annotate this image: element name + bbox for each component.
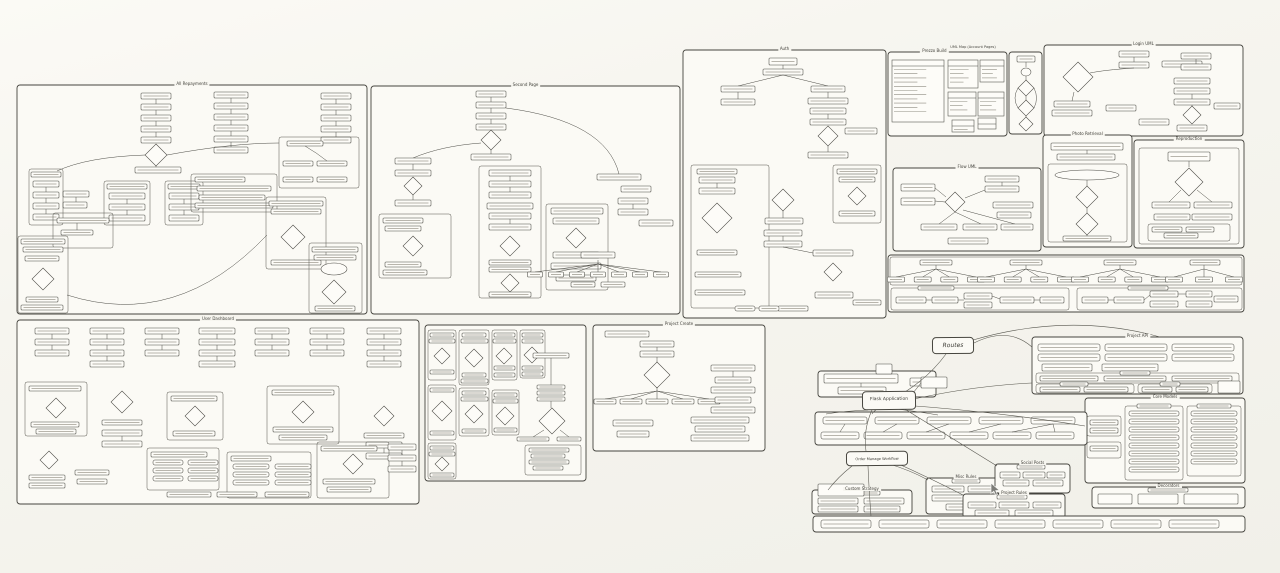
diagram-shapes-layer[interactable] [0,0,1280,573]
whiteboard-canvas[interactable]: All Repayments Second Page Auth Prezzo B… [0,0,1280,573]
node-routes[interactable]: Routes [932,337,974,354]
node-order-workflow[interactable]: Order Manage Workflow [846,451,908,467]
mouse-cursor [991,483,1005,499]
node-routes-label: Routes [943,342,964,349]
canvas-label-uml-map[interactable]: UML Map (Account Pages) [950,46,995,50]
node-flask-application-label: Flask Application [870,398,908,403]
node-flask-application[interactable]: Flask Application [862,391,916,411]
node-order-workflow-label: Order Manage Workflow [855,456,898,460]
